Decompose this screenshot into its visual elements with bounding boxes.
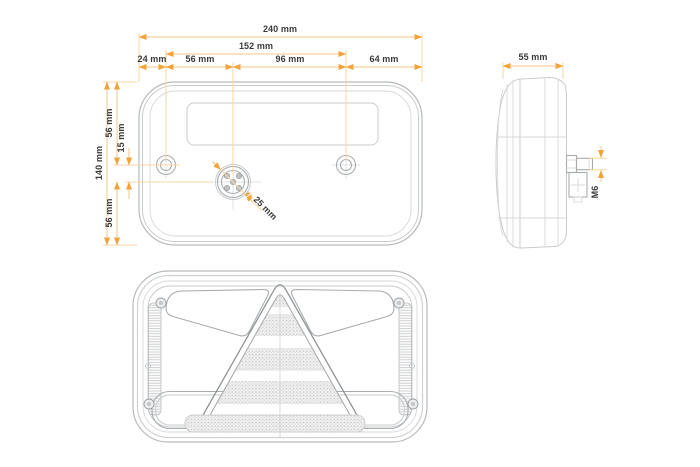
dim-vertical-segments: 56 mm 15 mm 56 mm xyxy=(104,82,212,245)
connector-pin xyxy=(236,173,241,178)
upper-left-lamp-section xyxy=(166,290,269,336)
side-lens-line xyxy=(498,90,504,236)
dim-stud-thread: M6 xyxy=(589,146,607,198)
dim-label-56mm-top: 56 mm xyxy=(104,108,114,137)
corner-screw-top-right xyxy=(394,298,404,308)
stud-bolt xyxy=(577,158,593,169)
dim-label-56mm-bottom: 56 mm xyxy=(104,198,114,227)
dim-label-m6: M6 xyxy=(590,186,600,199)
rear-view: 240 mm 152 mm 24 mm 56 mm 96 mm 64 mm 14… xyxy=(94,24,422,245)
connector-pin xyxy=(224,185,229,190)
upper-right-lamp-section xyxy=(291,290,394,336)
mounting-stud xyxy=(567,156,593,203)
bracket-tab xyxy=(574,197,582,202)
side-view: 55 mm xyxy=(496,52,607,248)
dim-label-140mm: 140 mm xyxy=(94,146,104,180)
side-profile xyxy=(496,78,567,249)
lamp-technical-drawing: 240 mm 152 mm 24 mm 56 mm 96 mm 64 mm 14… xyxy=(0,0,700,467)
triangle-base-band xyxy=(185,415,365,432)
rear-lens-edge xyxy=(150,91,411,236)
dim-total-height: 140 mm xyxy=(94,82,137,245)
triangle-reflector xyxy=(165,285,395,438)
corner-screw-top-left xyxy=(156,298,166,308)
dim-label-55mm: 55 mm xyxy=(518,52,547,62)
dim-label-15mm: 15 mm xyxy=(116,123,126,152)
technical-drawing-page: 240 mm 152 mm 24 mm 56 mm 96 mm 64 mm 14… xyxy=(0,0,700,467)
dim-label-152mm: 152 mm xyxy=(239,41,273,51)
left-ribbed-strip xyxy=(149,303,162,415)
corner-screw-bottom-left xyxy=(144,399,154,409)
rear-housing-outline xyxy=(139,82,422,245)
dim-label-24mm: 24 mm xyxy=(137,54,166,64)
dim-label-240mm: 240 mm xyxy=(263,24,297,34)
corner-screw-bottom-right xyxy=(408,399,418,409)
rear-housing-rim xyxy=(143,86,419,242)
dim-depth: 55 mm xyxy=(503,52,563,79)
dim-label-25mm: 25 mm xyxy=(252,194,280,222)
dim-label-56mm-h: 56 mm xyxy=(185,54,214,64)
diameter-icon xyxy=(245,192,251,198)
dim-label-64mm: 64 mm xyxy=(369,54,398,64)
rear-label-area xyxy=(187,103,378,145)
right-ribbed-strip xyxy=(399,303,412,415)
dim-segments-row: 24 mm 56 mm 96 mm 64 mm xyxy=(137,54,422,176)
front-view xyxy=(133,271,427,442)
dim-label-96mm: 96 mm xyxy=(275,54,304,64)
stud-nut xyxy=(567,156,577,173)
dim-total-width: 240 mm xyxy=(139,24,422,82)
